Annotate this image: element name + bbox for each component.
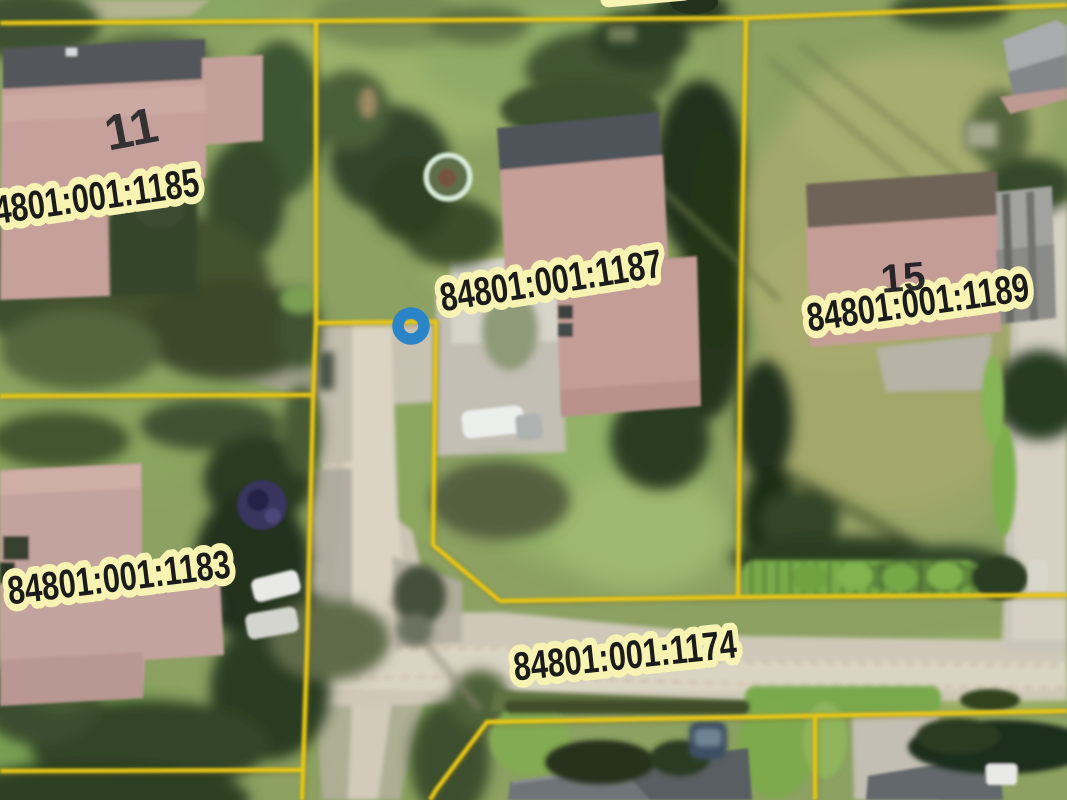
svg-text:15: 15 — [879, 254, 927, 302]
svg-text:11: 11 — [100, 96, 163, 161]
